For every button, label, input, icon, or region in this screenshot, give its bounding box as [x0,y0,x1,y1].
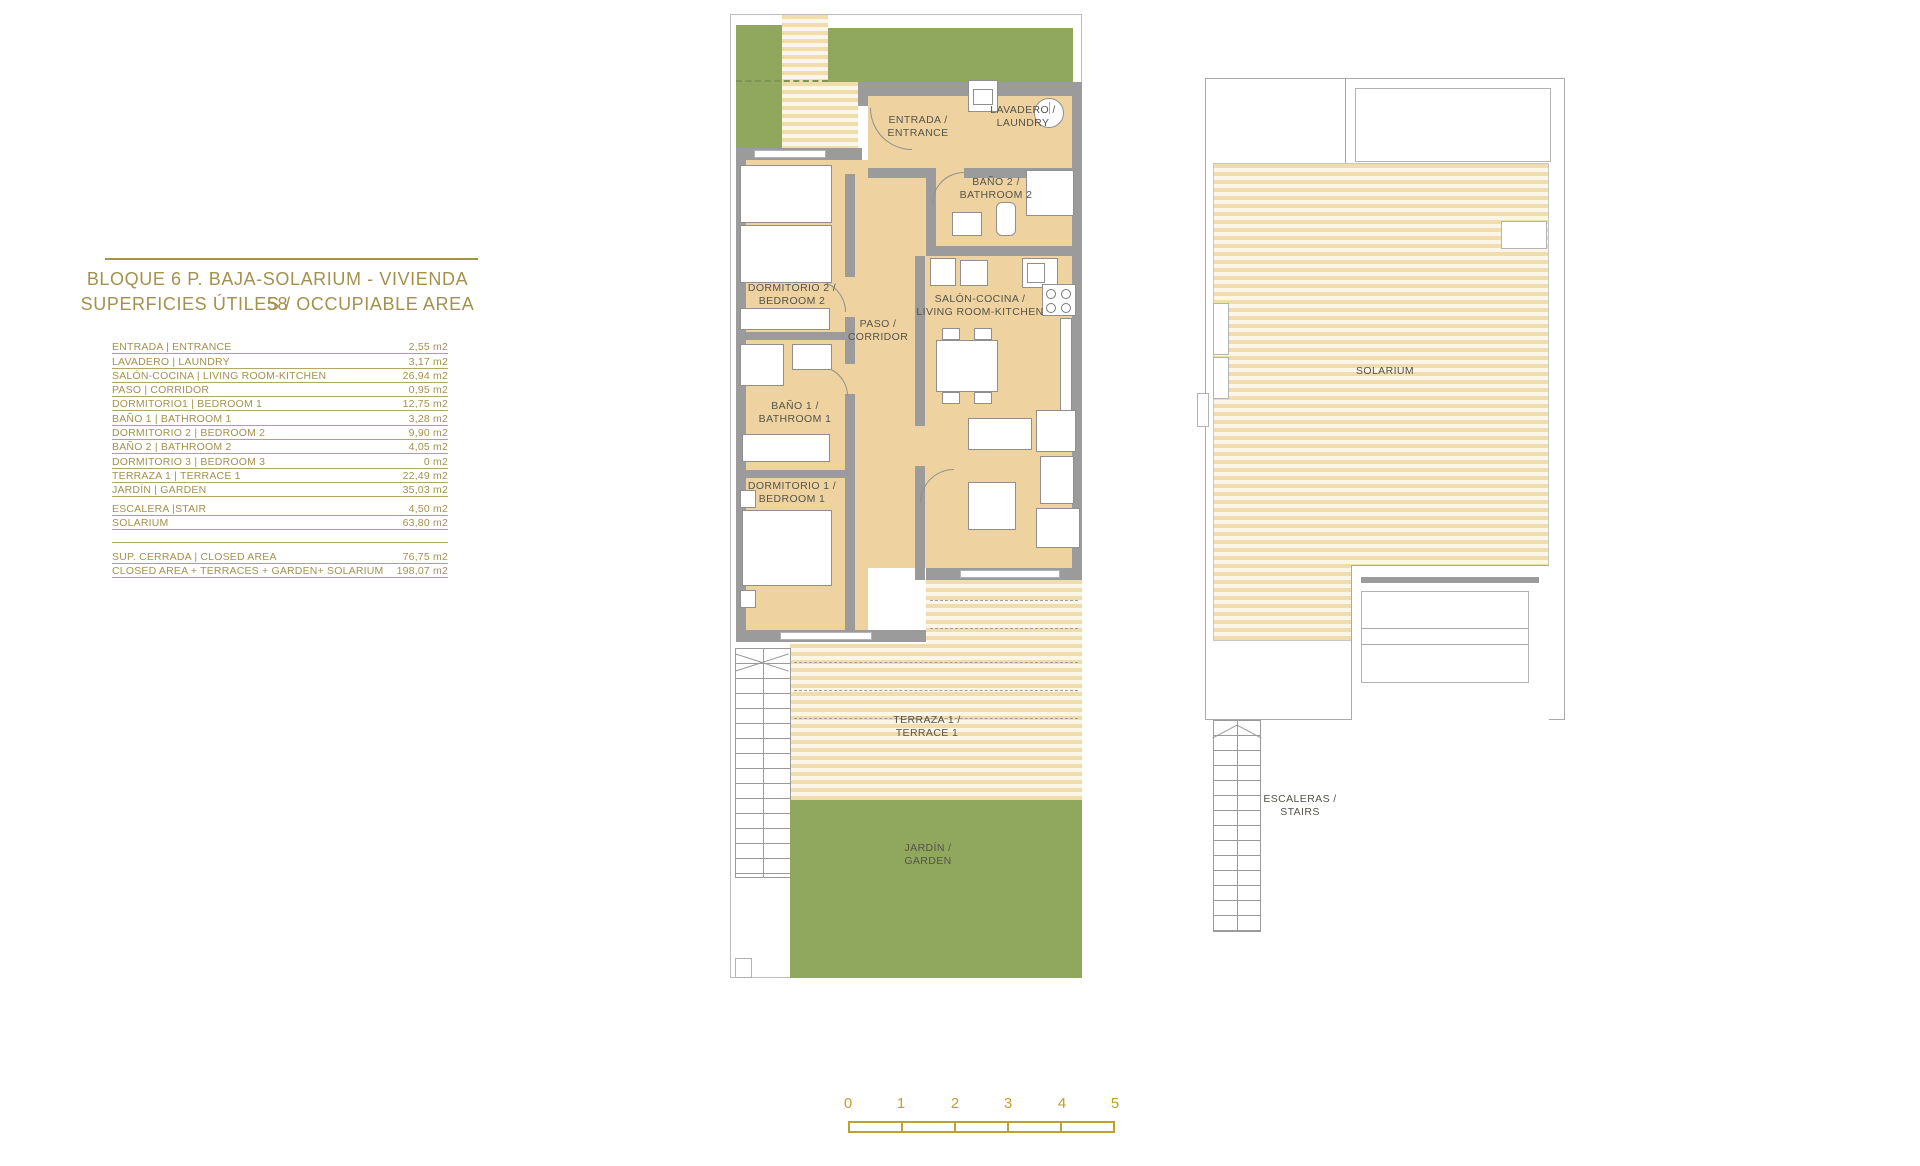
room-label-bano2: BAÑO 2 / BATHROOM 2 [956,176,1036,202]
bench-back [1361,577,1539,583]
bench-line [1362,628,1528,629]
sofa-icon [968,418,1032,450]
terrace-joint [930,628,1078,629]
area-row-value: 0,95 m2 [409,384,448,396]
plan-title-line2: SUPERFICIES ÚTILES / OCCUPIABLE AREA [75,292,480,317]
room-label-dormitorio2: DORMITORIO 2 / BEDROOM 2 [742,282,842,308]
garden-top-left [736,25,782,148]
window-icon [754,150,826,158]
skylight-box [1501,221,1547,249]
summary-row: SUP. CERRADA | CLOSED AREA76,75 m2 [112,550,448,564]
burner-icon [1046,289,1056,299]
chair-icon [942,328,960,340]
wall [845,174,855,277]
chair-icon [974,328,992,340]
chair-icon [974,392,992,404]
room-label-escaleras: ESCALERAS / STAIRS [1245,793,1355,819]
bathtub-icon [742,434,830,462]
sofa-icon [1040,456,1074,504]
window-icon [960,570,1060,578]
wall [845,394,855,630]
bed-icon [742,510,832,586]
area-row-value: 26,94 m2 [403,370,448,382]
wall [868,168,932,178]
garden-top-right [828,28,1073,82]
sink-basin [1027,263,1045,283]
area-row: ENTRADA | ENTRANCE2,55 m2 [112,340,448,354]
area-row-value: 3,28 m2 [409,413,448,425]
area-row-label: SOLARIUM [112,517,168,529]
room-label-solarium: SOLARIUM [1325,365,1445,378]
stairs-icon [735,648,791,878]
scale-segment [850,1123,903,1131]
area-info-panel: BLOQUE 6 P. BAJA-SOLARIUM - VIVIENDA 58 … [75,255,480,575]
area-row-value: 9,90 m2 [409,427,448,439]
edge-box [1213,357,1229,399]
edge-box [1197,393,1209,427]
area-row-label: PASO | CORRIDOR [112,384,209,396]
dining-table-icon [936,340,998,392]
area-row: TERRAZA 1 | TERRACE 122,49 m2 [112,469,448,483]
area-row-label: BAÑO 1 | BATHROOM 1 [112,413,232,425]
area-row-label: DORMITORIO 2 | BEDROOM 2 [112,427,265,439]
scale-bar: 0 1 2 3 4 5 [843,1095,1119,1137]
nightstand-icon [740,590,756,608]
burner-icon [1061,289,1071,299]
garden-main [790,800,1082,978]
summary-row-label: CLOSED AREA + TERRACES + GARDEN+ SOLARIU… [112,565,383,577]
area-row-value: 35,03 m2 [403,484,448,496]
bed-icon [740,165,832,223]
counter-icon [960,260,988,286]
area-row: BAÑO 2 | BATHROOM 24,05 m2 [112,440,448,454]
wall [926,246,1082,256]
wall [926,168,936,256]
room-label-jardin: JARDÍN / GARDEN [868,842,988,868]
scale-segment [1062,1123,1113,1131]
sink-icon [792,344,832,370]
wall [858,82,868,106]
roof-divider [1345,78,1346,165]
area-row-label: LAVADERO | LAUNDRY [112,356,230,368]
area-row-label: SALÓN-COCINA | LIVING ROOM-KITCHEN [112,370,326,382]
terrace-joint [794,690,1078,691]
area-row: ESCALERA |STAIR4,50 m2 [112,501,448,515]
scale-number: 5 [1106,1095,1124,1112]
area-row: SOLARIUM63,80 m2 [112,516,448,530]
wall [915,466,925,580]
burner-icon [1046,303,1056,313]
title-rule [105,258,478,260]
scale-bar-segments [848,1121,1115,1133]
stairs-icon [1213,720,1261,932]
wall [736,470,855,478]
area-row-label: DORMITORIO1 | BEDROOM 1 [112,398,262,410]
room-label-dormitorio1: DORMITORIO 1 / BEDROOM 1 [742,480,842,506]
scale-number: 2 [946,1095,964,1112]
area-row: LAVADERO | LAUNDRY3,17 m2 [112,354,448,368]
wardrobe-icon [740,308,830,330]
room-label-salon: SALÓN-COCINA / LIVING ROOM-KITCHEN [915,293,1045,319]
shower-icon [740,344,784,386]
scale-segment [1009,1123,1062,1131]
bed-icon [740,225,832,283]
entry-paving [782,82,858,148]
area-row-value: 12,75 m2 [403,398,448,410]
wall [1072,82,1082,580]
area-row: DORMITORIO 3 | BEDROOM 30 m2 [112,454,448,468]
sink-icon [952,212,982,236]
garden-dashed-divider [736,80,828,82]
area-row-value: 63,80 m2 [403,517,448,529]
summary-separator [112,542,448,550]
terrace-upper [926,580,1082,644]
room-label-paso: PASO / CORRIDOR [838,318,918,344]
area-row-label: ESCALERA |STAIR [112,503,206,515]
stove-icon [1042,284,1076,316]
counter-icon [1060,318,1072,422]
area-row-value: 22,49 m2 [403,470,448,482]
summary-row-value: 76,75 m2 [403,551,448,563]
scale-segment [903,1123,956,1131]
sofa-icon [1036,410,1076,452]
window-icon [780,632,872,640]
room-label-terraza1: TERRAZA 1 / TERRACE 1 [867,714,987,740]
scale-number: 3 [999,1095,1017,1112]
terrace-joint [794,662,1078,663]
counter-icon [930,258,956,286]
area-row-value: 2,55 m2 [409,341,448,353]
area-row-label: JARDÍN | GARDEN [112,484,206,496]
area-row: BAÑO 1 | BATHROOM 13,28 m2 [112,411,448,425]
area-row-value: 4,50 m2 [409,503,448,515]
scale-number: 0 [839,1095,857,1112]
room-label-entrada: ENTRADA / ENTRANCE [878,114,958,140]
room-label-bano1: BAÑO 1 / BATHROOM 1 [745,400,845,426]
area-row: JARDÍN | GARDEN35,03 m2 [112,483,448,497]
summary-row: CLOSED AREA + TERRACES + GARDEN+ SOLARIU… [112,564,448,578]
edge-box [1213,303,1229,355]
scale-number: 4 [1053,1095,1071,1112]
bench-icon [1361,591,1529,683]
area-row: SALÓN-COCINA | LIVING ROOM-KITCHEN26,94 … [112,369,448,383]
bench-line [1362,644,1528,645]
room-label-lavadero: LAVADERO / LAUNDRY [983,104,1063,130]
terrace-joint [930,600,1078,601]
armchair-icon [968,482,1016,530]
area-row-value: 4,05 m2 [409,441,448,453]
area-row: PASO | CORRIDOR0,95 m2 [112,383,448,397]
solarium-plan: SOLARIUM ESCALERAS / STAIRS [1205,75,1573,887]
garden-step [735,958,752,978]
area-row-value: 3,17 m2 [409,356,448,368]
area-row-label: BAÑO 2 | BATHROOM 2 [112,441,232,453]
chair-icon [942,392,960,404]
roof-box [1355,88,1551,162]
area-row-label: DORMITORIO 3 | BEDROOM 3 [112,456,265,468]
area-row-value: 0 m2 [424,456,448,468]
area-row-label: TERRAZA 1 | TERRACE 1 [112,470,241,482]
burner-icon [1061,303,1071,313]
toilet-icon [996,202,1016,236]
summary-row-label: SUP. CERRADA | CLOSED AREA [112,551,277,563]
washer-drum [973,89,993,105]
area-row-label: ENTRADA | ENTRANCE [112,341,232,353]
ground-floor-plan: ENTRADA / ENTRANCE LAVADERO / LAUNDRY BA… [730,14,1090,980]
area-row: DORMITORIO 2 | BEDROOM 29,90 m2 [112,426,448,440]
sofa-icon [1036,508,1080,548]
area-table: ENTRADA | ENTRANCE2,55 m2 LAVADERO | LAU… [112,340,448,578]
scale-number: 1 [892,1095,910,1112]
summary-row-value: 198,07 m2 [397,565,448,577]
area-row: DORMITORIO1 | BEDROOM 112,75 m2 [112,397,448,411]
scale-segment [956,1123,1009,1131]
